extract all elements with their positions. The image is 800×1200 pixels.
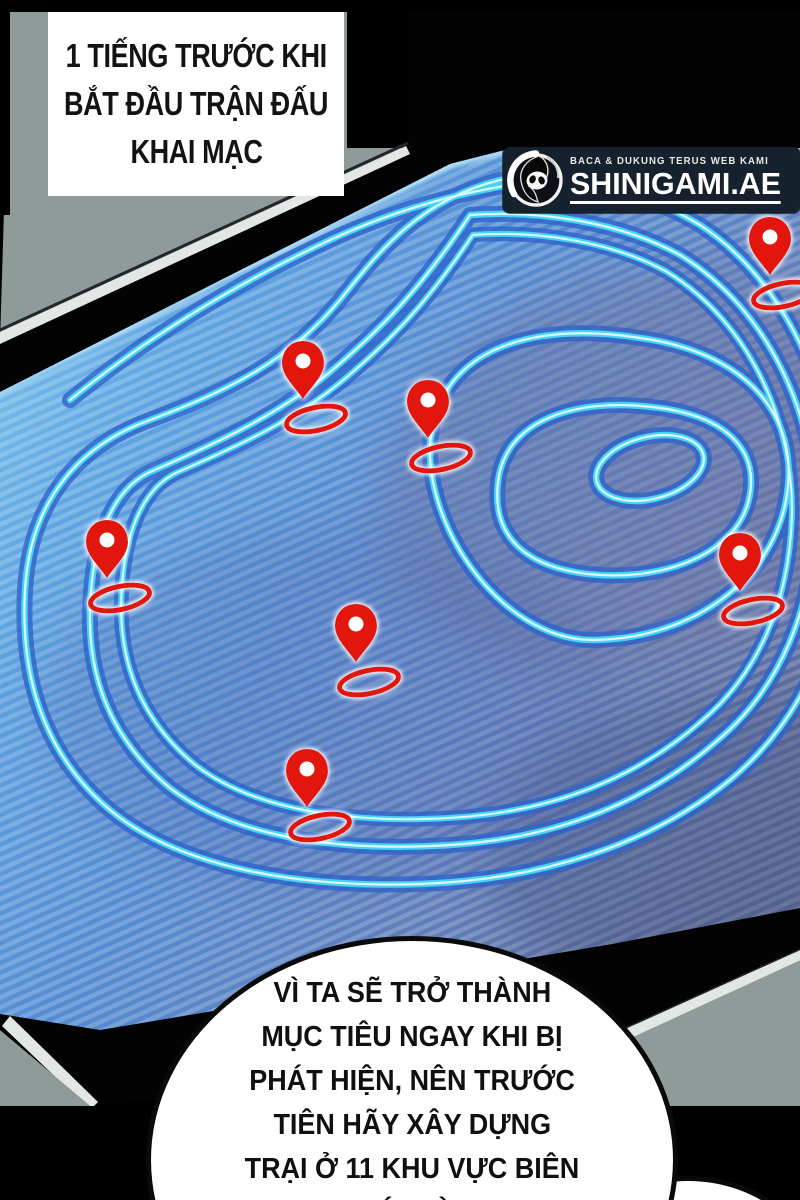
bubble-line: VÌ TA SẼ TRỞ THÀNH (273, 971, 551, 1015)
watermark-text: BACA & DUKUNG TERUS WEB KAMI SHINIGAMI.A… (570, 156, 785, 204)
bubble-line: TIÊN HÃY XÂY DỰNG (273, 1103, 551, 1147)
comic-page: 1 TIẾNG TRƯỚC KHI BẮT ĐẦU TRẬN ĐẤU KHAI … (0, 0, 800, 1200)
bubble-line: PHÁT HIỆN, NÊN TRƯỚC (249, 1059, 575, 1103)
speech-bubble-text: VÌ TA SẼ TRỞ THÀNH MỤC TIÊU NGAY KHI BỊ … (232, 971, 592, 1200)
caption-box: 1 TIẾNG TRƯỚC KHI BẮT ĐẦU TRẬN ĐẤU KHAI … (48, 12, 344, 196)
page-margin-left (0, 0, 10, 215)
bubble-line: TRẠI Ở 11 KHU VỰC BIÊN (245, 1147, 580, 1191)
reaper-skull-icon (506, 150, 566, 210)
caption-line: BẮT ĐẦU TRẬN ĐẤU (64, 80, 328, 128)
watermark-bar: BACA & DUKUNG TERUS WEB KAMI SHINIGAMI.A… (503, 147, 800, 213)
caption-line: 1 TIẾNG TRƯỚC KHI (65, 32, 326, 80)
watermark-site-name: SHINIGAMI.AE (570, 167, 781, 204)
bubble-line: GIỚI NÀY. (348, 1191, 476, 1200)
bubble-line: MỤC TIÊU NGAY KHI BỊ (261, 1015, 562, 1059)
page-margin-top (0, 0, 800, 12)
caption-line: KHAI MẠC (130, 128, 262, 176)
